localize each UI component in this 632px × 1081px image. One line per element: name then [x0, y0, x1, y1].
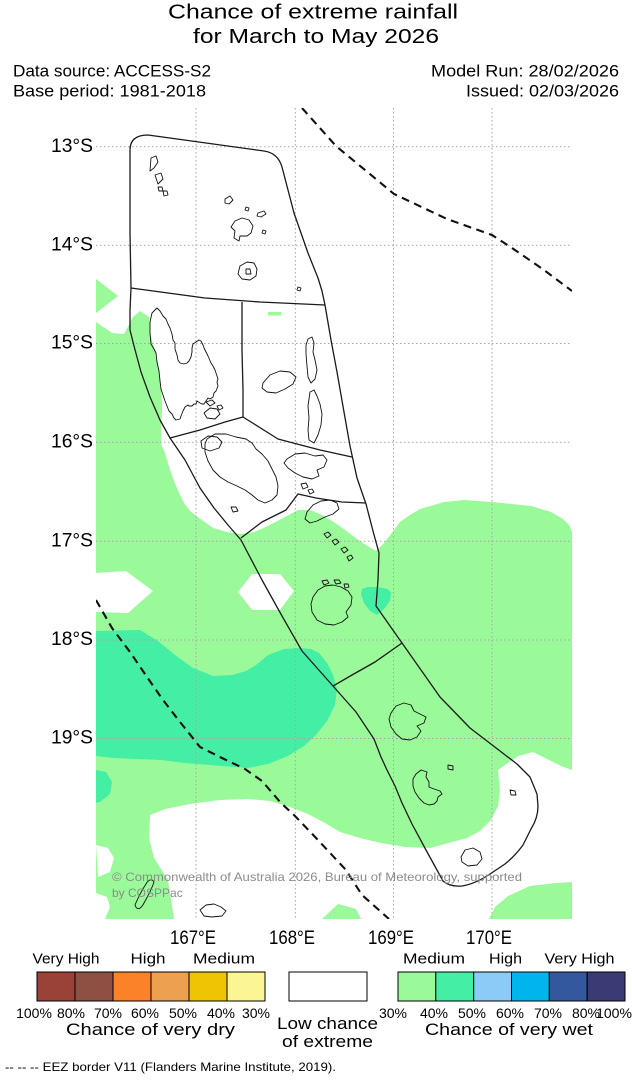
- svg-text:50%: 50%: [169, 1005, 197, 1021]
- svg-text:19°S: 19°S: [51, 728, 93, 749]
- svg-text:Chance of very dry: Chance of very dry: [66, 1020, 236, 1039]
- svg-text:30%: 30%: [242, 1005, 270, 1021]
- svg-text:13°S: 13°S: [51, 136, 93, 157]
- svg-text:16°S: 16°S: [51, 432, 93, 453]
- svg-text:Very High: Very High: [545, 952, 615, 968]
- svg-text:168°E: 168°E: [269, 928, 315, 949]
- svg-text:for March to May 2026: for March to May 2026: [193, 26, 439, 48]
- svg-text:Issued: 02/03/2026: Issued: 02/03/2026: [466, 83, 619, 101]
- svg-text:80%: 80%: [57, 1005, 85, 1021]
- svg-text:Base period: 1981-2018: Base period: 1981-2018: [13, 83, 206, 101]
- svg-text:High: High: [131, 952, 166, 968]
- svg-text:of extreme: of extreme: [282, 1032, 373, 1051]
- svg-text:-- -- -- EEZ border V11 (Fla: -- -- -- EEZ border V11 (Flanders Marine…: [5, 1060, 336, 1074]
- svg-text:Chance of very wet: Chance of very wet: [425, 1020, 593, 1039]
- svg-text:30%: 30%: [379, 1005, 407, 1021]
- svg-text:by COSPPac: by COSPPac: [112, 886, 183, 900]
- svg-text:Medium: Medium: [193, 952, 255, 968]
- svg-text:15°S: 15°S: [51, 333, 93, 354]
- svg-text:40%: 40%: [420, 1005, 448, 1021]
- svg-text:Data source: ACCESS-S2: Data source: ACCESS-S2: [13, 63, 211, 81]
- svg-text:Low chance: Low chance: [277, 1014, 378, 1033]
- svg-text:High: High: [489, 952, 522, 968]
- svg-text:Medium: Medium: [403, 952, 465, 968]
- svg-text:170°E: 170°E: [466, 928, 512, 949]
- svg-text:40%: 40%: [207, 1005, 235, 1021]
- svg-text:100%: 100%: [16, 1005, 52, 1021]
- svg-text:14°S: 14°S: [51, 234, 93, 255]
- svg-text:70%: 70%: [534, 1005, 562, 1021]
- svg-text:60%: 60%: [496, 1005, 524, 1021]
- svg-text:17°S: 17°S: [51, 531, 93, 552]
- svg-text:169°E: 169°E: [368, 928, 414, 949]
- svg-text:Very High: Very High: [33, 952, 100, 968]
- svg-text:Model Run: 28/02/2026: Model Run: 28/02/2026: [431, 63, 619, 81]
- svg-text:18°S: 18°S: [51, 629, 93, 650]
- svg-text:50%: 50%: [458, 1005, 486, 1021]
- svg-text:70%: 70%: [94, 1005, 122, 1021]
- svg-text:60%: 60%: [131, 1005, 159, 1021]
- svg-text:100%: 100%: [596, 1005, 632, 1021]
- svg-text:Chance of extreme rainfall: Chance of extreme rainfall: [168, 2, 458, 24]
- svg-text:167°E: 167°E: [170, 928, 216, 949]
- svg-text:© Commonwealth of Australia 20: © Commonwealth of Australia 2026, Bureau…: [112, 870, 522, 884]
